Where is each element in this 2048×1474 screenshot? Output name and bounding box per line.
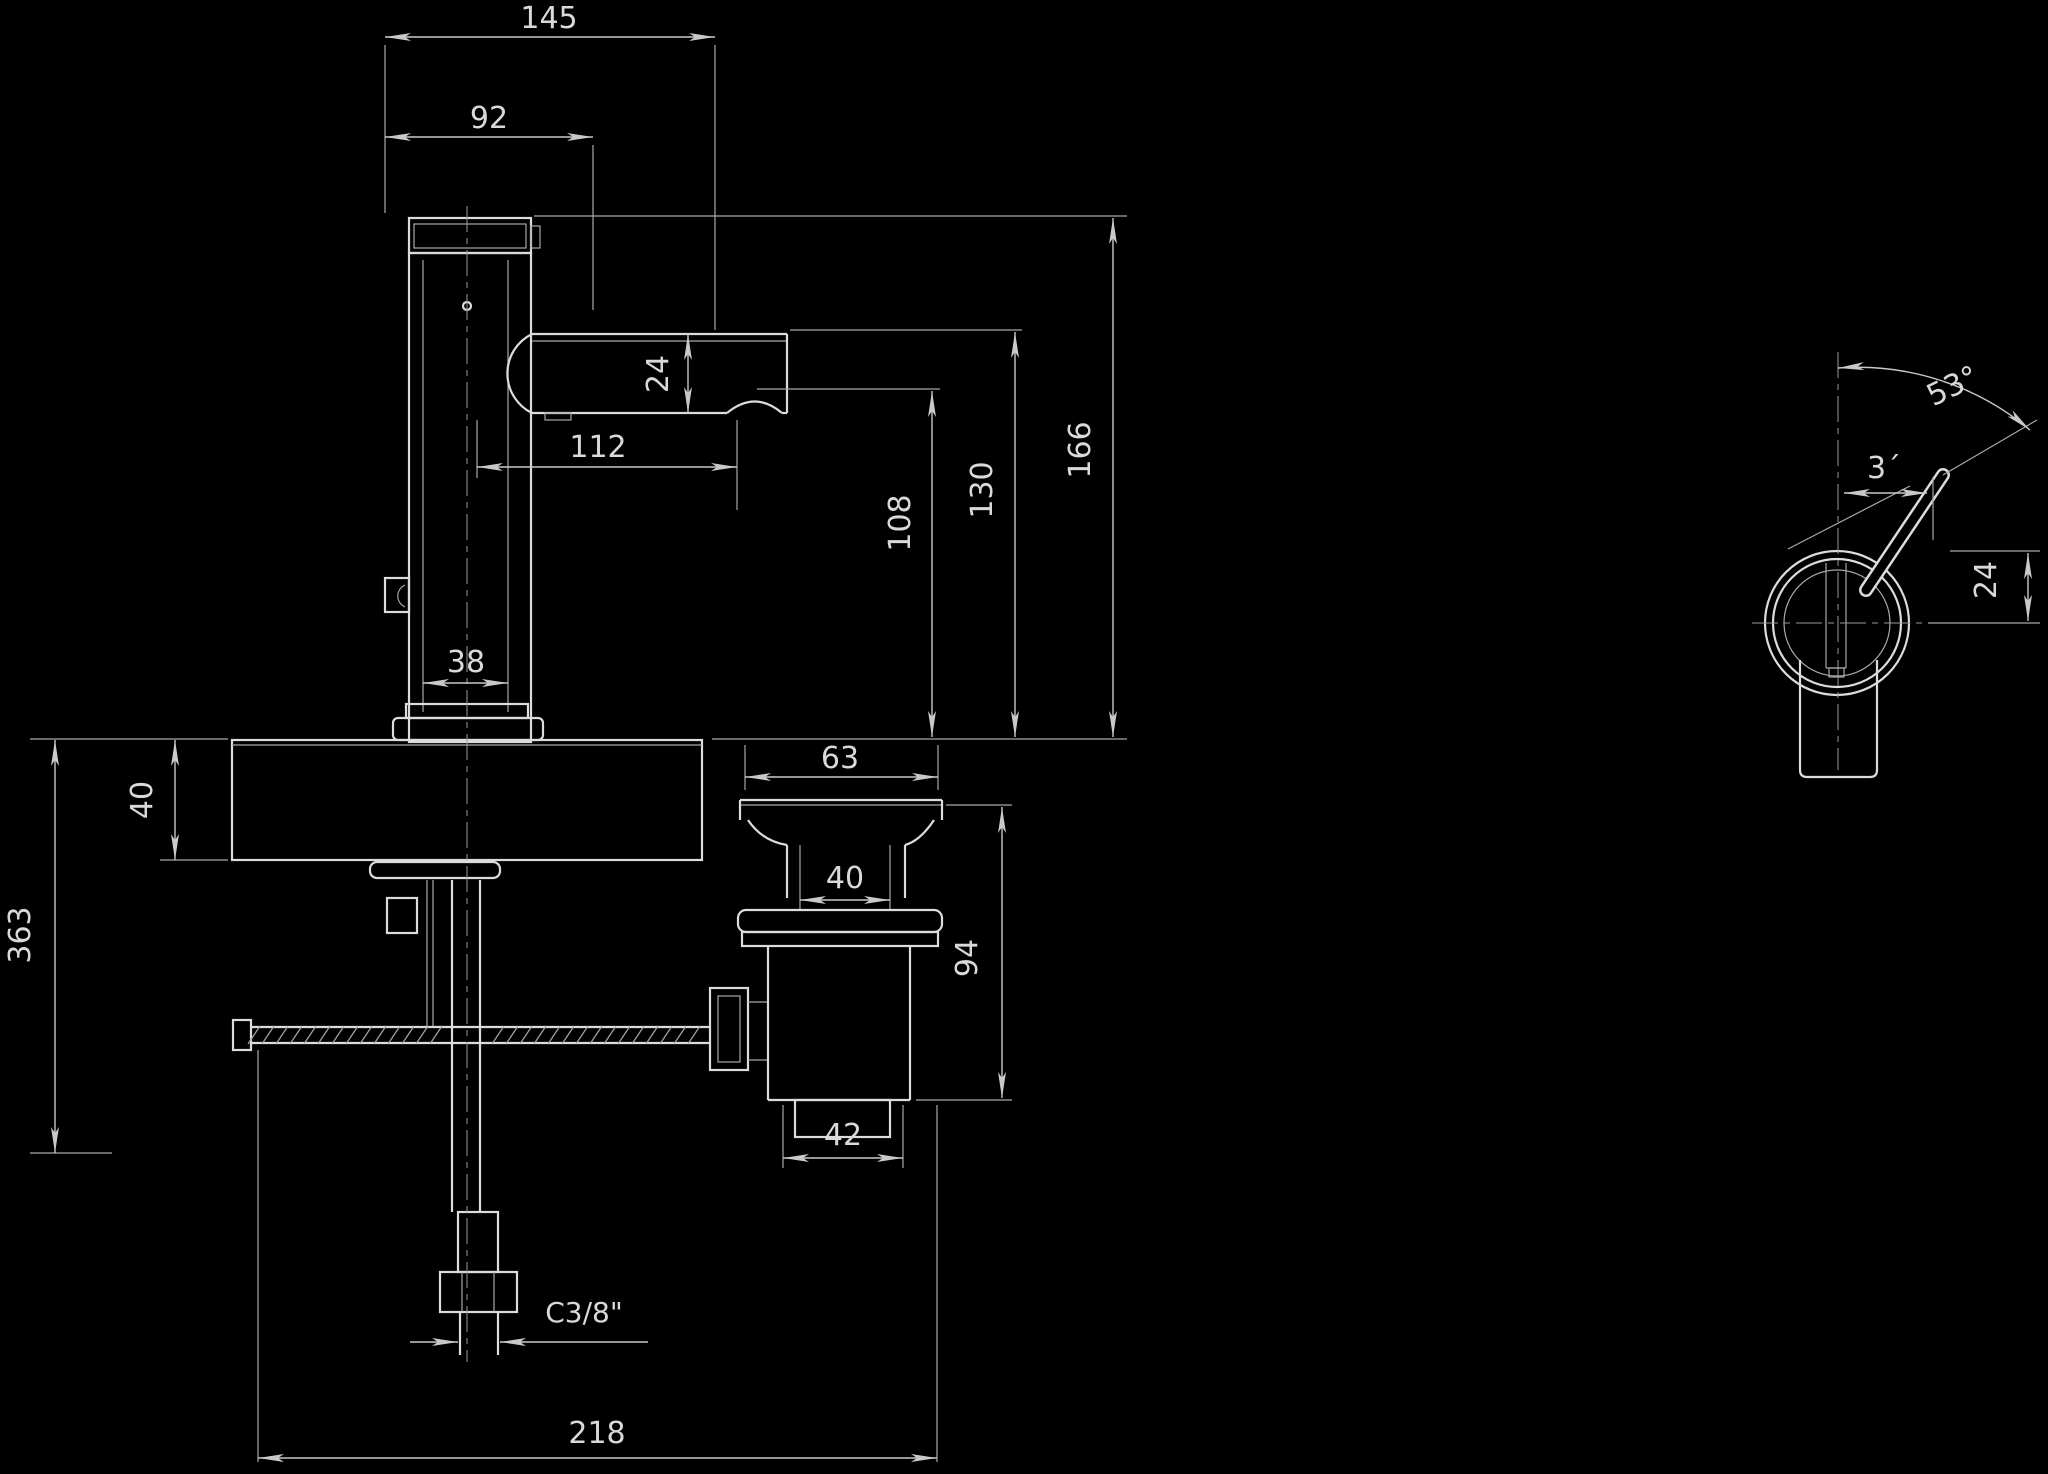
- base-escutcheon: [393, 718, 543, 740]
- label-92: 92: [470, 101, 508, 136]
- dimension-labels: 145 92 24 112 38 40 363 166 130 108 218 …: [3, 1, 2004, 1451]
- label-94: 94: [950, 939, 985, 977]
- drain-funnel-curve-left: [748, 820, 787, 845]
- spout-outlet-arc: [727, 402, 782, 414]
- drain-collar-band: [742, 932, 938, 946]
- label-24-top: 24: [1969, 561, 2004, 599]
- body-side-clip-arc: [398, 585, 405, 607]
- supply-hex-nut: [440, 1272, 517, 1312]
- faucet-technical-drawing: 145 92 24 112 38 40 363 166 130 108 218 …: [0, 0, 2048, 1474]
- dimension-lines: [55, 37, 2030, 1458]
- hose-braid-hatching: [248, 1026, 700, 1044]
- label-108: 108: [883, 494, 918, 551]
- supply-coupling: [458, 1212, 498, 1272]
- label-53: 53°: [1921, 359, 1984, 414]
- handle-bar-endcap: [531, 226, 540, 248]
- label-42: 42: [824, 1118, 862, 1153]
- label-40-deck: 40: [125, 781, 160, 819]
- label-24-spout: 24: [641, 355, 676, 393]
- mounting-plate: [370, 862, 500, 878]
- label-363: 363: [3, 906, 38, 963]
- handle-bar-inner: [414, 224, 526, 248]
- drawing-canvas: 145 92 24 112 38 40 363 166 130 108 218 …: [0, 0, 2048, 1474]
- label-112: 112: [569, 430, 626, 465]
- label-3: 3´: [1867, 451, 1901, 486]
- drain-collar: [738, 910, 942, 932]
- label-38: 38: [447, 645, 485, 680]
- label-166: 166: [1063, 421, 1098, 478]
- label-c38: C3/8": [545, 1296, 623, 1329]
- lever-angle-leader: [1943, 420, 2037, 475]
- label-218: 218: [568, 1416, 625, 1451]
- popup-clevis: [710, 988, 748, 1070]
- centerlines: [467, 206, 1928, 1362]
- label-63: 63: [821, 741, 859, 776]
- popup-clevis-inner: [718, 996, 740, 1062]
- mounting-nut-block: [387, 898, 417, 933]
- label-40-drain: 40: [826, 861, 864, 896]
- body-side-clip: [385, 578, 409, 612]
- label-130: 130: [965, 461, 1000, 518]
- drain-funnel-curve-right: [905, 820, 934, 845]
- spout-left-cap: [507, 334, 532, 413]
- extension-lines: [30, 45, 2040, 1462]
- front-view: [232, 218, 1127, 1355]
- label-145: 145: [520, 1, 577, 36]
- lever-top-view-core: [1866, 475, 1943, 590]
- hose-end-cap: [233, 1020, 251, 1050]
